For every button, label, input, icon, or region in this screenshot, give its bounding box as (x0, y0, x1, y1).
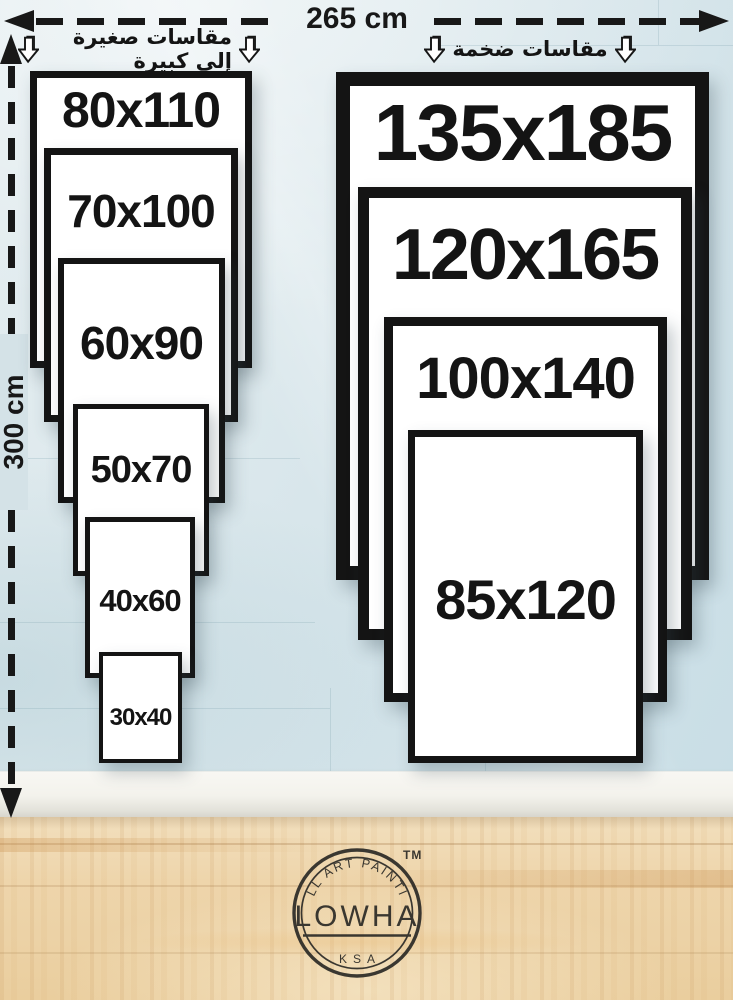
size-label: 50x70 (78, 451, 204, 489)
dashed-line (8, 510, 15, 786)
baseboard (0, 771, 733, 818)
size-label: 135x185 (350, 93, 695, 173)
size-label: 70x100 (51, 188, 231, 234)
group-label-text: مقاسات ضخمة (452, 37, 607, 61)
arrow-left-icon (4, 10, 34, 32)
size-label: 120x165 (369, 219, 681, 291)
huge-sizes-group-label: مقاسات ضخمة (408, 31, 652, 67)
arrow-down-icon (0, 788, 22, 818)
arrow-right-icon (699, 10, 729, 32)
size-label: 85x120 (415, 572, 636, 628)
outlined-down-arrow-icon (615, 35, 636, 64)
dashed-line (434, 18, 700, 25)
outlined-down-arrow-icon (18, 35, 39, 64)
brand-origin: KSA (339, 952, 381, 966)
wall-seam (330, 688, 331, 771)
trademark-symbol: TM (403, 848, 422, 862)
size-label: 30x40 (103, 706, 178, 730)
dashed-line (36, 18, 280, 25)
outlined-down-arrow-icon (424, 35, 445, 64)
brand-name: LOWHA (294, 900, 419, 933)
small-sizes-group-label: مقاسات صغيرة إلى كبيرة (18, 31, 260, 67)
frame-30x40: 30x40 (99, 652, 182, 763)
height-measurement-label: 300 cm (0, 334, 28, 510)
size-chart-poster: 265 cm 300 cm مقاسات صغيرة إلى كبيرة مقا… (0, 0, 733, 1000)
size-label: 100x140 (393, 350, 658, 408)
size-label: 60x90 (64, 320, 219, 366)
frame-85x120: 85x120 (408, 430, 643, 763)
size-label: 40x60 (90, 585, 190, 616)
size-label: 80x110 (37, 85, 245, 135)
dashed-line (8, 66, 15, 334)
brand-stamp: WALL ART PAINTING LOWHA KSA TM (277, 833, 437, 993)
group-label-text: مقاسات صغيرة إلى كبيرة (46, 25, 232, 73)
outlined-down-arrow-icon (239, 35, 260, 64)
